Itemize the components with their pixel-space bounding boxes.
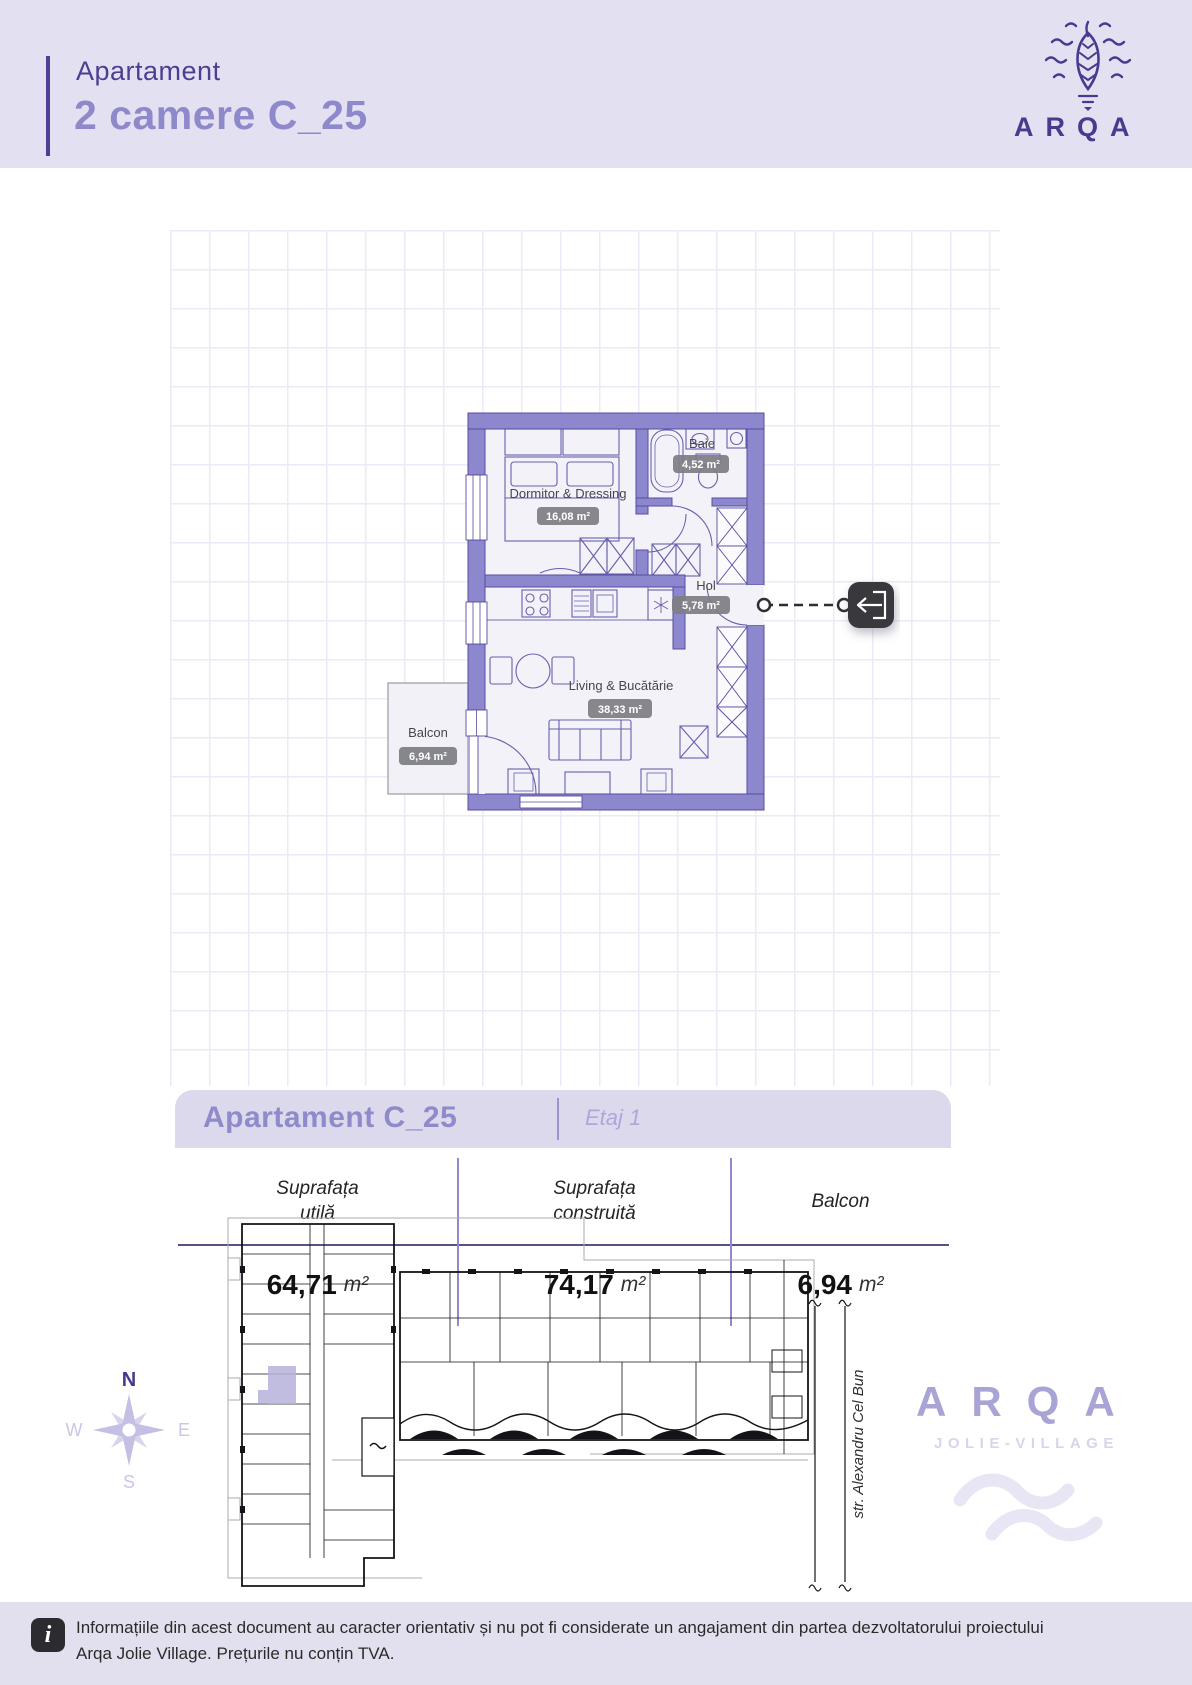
apartment-subtitle: Apartament [76, 56, 221, 87]
disclaimer-line2: Arqa Jolie Village. Prețurile nu conțin … [76, 1641, 1176, 1667]
summary-divider [557, 1098, 559, 1140]
floor-plan: Dormitor & Dressing 16,08 m² Baie 4,52 m… [340, 380, 900, 820]
room-label-balcon: Balcon [408, 725, 448, 740]
compass-center [121, 1422, 137, 1438]
buildings [242, 1224, 808, 1586]
waves-icon [946, 1466, 1116, 1556]
area-text-living: 38,33 m² [598, 704, 642, 716]
compass-north-label: N [122, 1369, 136, 1391]
brochure-page: Apartament 2 camere C_25 [0, 0, 1192, 1685]
disclaimer-line1: Informațiile din acest document au carac… [76, 1615, 1176, 1641]
summary-title: Apartament C_25 [203, 1101, 457, 1135]
arqa-wordmark: ARQA [1014, 112, 1142, 143]
compass-rose: N S W E [44, 1356, 214, 1496]
summary-floor: Etaj 1 [585, 1105, 641, 1131]
highlighted-apartment [268, 1366, 296, 1404]
highlighted-balcony [258, 1390, 268, 1403]
disclaimer-text: Informațiile din acest document au carac… [76, 1615, 1176, 1667]
street-lines [809, 1300, 851, 1591]
area-text-dormitor: 16,08 m² [546, 511, 590, 523]
header-line1: Suprafața [553, 1176, 635, 1201]
entrance-marker [758, 582, 894, 628]
street-label: str. Alexandru Cel Bun [850, 1370, 867, 1519]
footer-band: i Informațiile din acest document au car… [0, 1602, 1192, 1685]
accent-bar [46, 56, 50, 156]
room-label-hol: Hol [696, 578, 716, 593]
compass-west-label: W [66, 1420, 83, 1440]
room-label-living: Living & Bucătărie [569, 678, 674, 693]
header-band: Apartament 2 camere C_25 [0, 0, 1192, 168]
compass-south-label: S [123, 1472, 135, 1492]
landscape-details [240, 1266, 778, 1513]
area-text-baie: 4,52 m² [682, 459, 720, 471]
room-label-dormitor: Dormitor & Dressing [509, 486, 626, 501]
site-plan: str. Alexandru Cel Bun [212, 1210, 872, 1598]
arqa-emblem-icon [1040, 16, 1136, 112]
apartment-title: 2 camere C_25 [74, 92, 368, 139]
compass-east-label: E [178, 1420, 190, 1440]
summary-header-bar: Apartament C_25 Etaj 1 [175, 1090, 951, 1148]
jolie-village-label: JOLIE-VILLAGE [934, 1435, 1119, 1452]
area-text-hol: 5,78 m² [682, 600, 720, 612]
arqa-bottom-wordmark: ARQA [916, 1378, 1140, 1426]
header-line1: Suprafața [276, 1176, 358, 1201]
room-label-baie: Baie [689, 436, 715, 451]
info-icon: i [31, 1618, 65, 1652]
area-text-balcon: 6,94 m² [409, 751, 447, 763]
